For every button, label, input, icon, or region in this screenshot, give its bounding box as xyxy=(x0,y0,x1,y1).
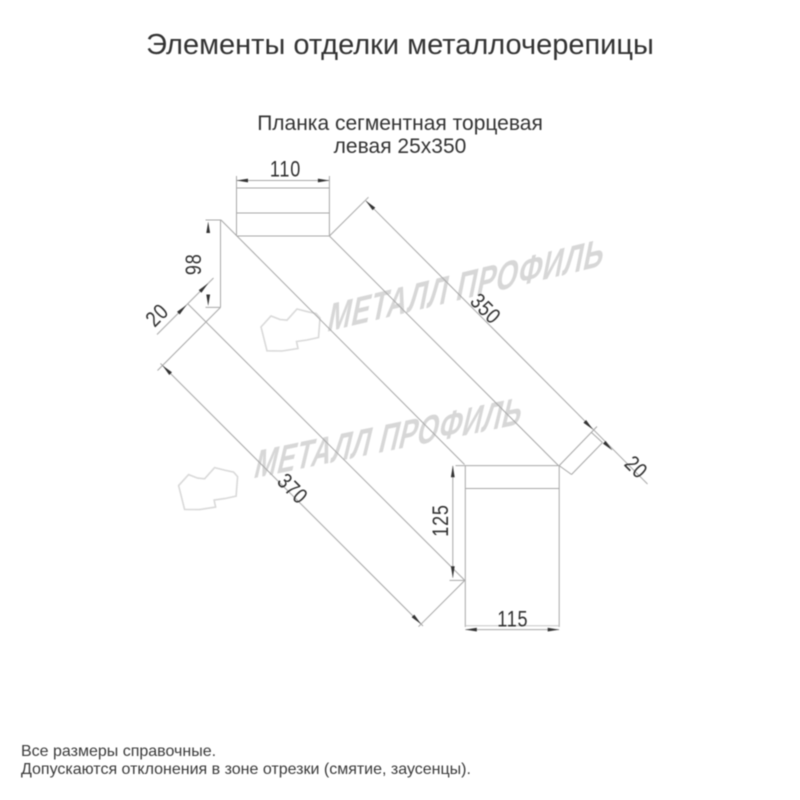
svg-text:20: 20 xyxy=(619,452,651,484)
svg-text:115: 115 xyxy=(497,608,528,632)
svg-text:20: 20 xyxy=(142,300,174,332)
svg-text:110: 110 xyxy=(270,158,301,182)
svg-text:98: 98 xyxy=(182,253,206,275)
svg-text:125: 125 xyxy=(429,504,453,537)
svg-text:МЕТАЛЛ ПРОФИЛЬ: МЕТАЛЛ ПРОФИЛЬ xyxy=(324,229,610,341)
